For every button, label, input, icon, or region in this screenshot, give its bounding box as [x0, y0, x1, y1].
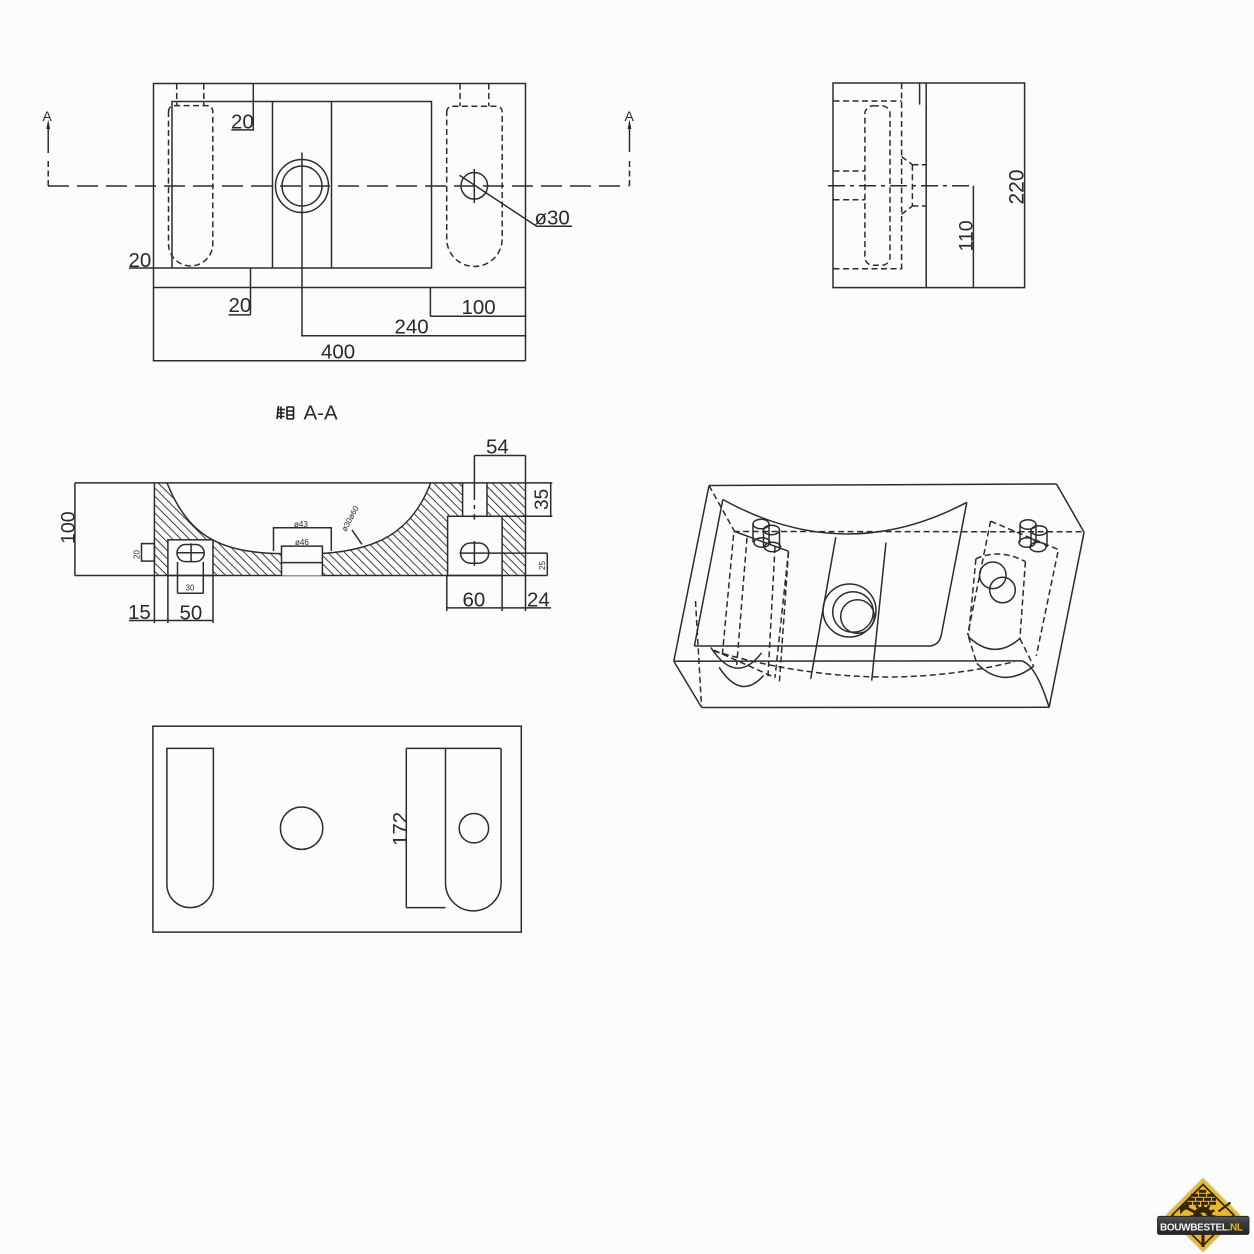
svg-text:ø43: ø43	[294, 520, 308, 529]
svg-text:ø30: ø30	[535, 207, 570, 230]
svg-text:172: 172	[389, 812, 412, 846]
svg-text:54: 54	[486, 436, 509, 459]
svg-text:100: 100	[58, 511, 80, 544]
svg-text:110: 110	[956, 220, 978, 251]
svg-text:240: 240	[395, 316, 429, 339]
svg-text:25: 25	[538, 561, 547, 570]
svg-text:24: 24	[527, 589, 550, 612]
svg-text:A: A	[43, 108, 53, 124]
svg-text:100: 100	[462, 296, 496, 319]
svg-text:35: 35	[532, 489, 553, 510]
svg-text:ø46: ø46	[295, 538, 309, 547]
svg-text:20: 20	[229, 294, 252, 317]
svg-text:A-A: A-A	[304, 402, 339, 425]
svg-text:BOUWBESTEL.NL: BOUWBESTEL.NL	[1160, 1222, 1243, 1233]
svg-text:50: 50	[180, 602, 203, 625]
svg-text:220: 220	[1006, 169, 1029, 204]
svg-text:20: 20	[133, 550, 142, 559]
svg-text:400: 400	[321, 341, 355, 364]
svg-text:60: 60	[463, 589, 486, 612]
svg-text:30: 30	[186, 584, 195, 593]
svg-text:15: 15	[128, 601, 151, 624]
